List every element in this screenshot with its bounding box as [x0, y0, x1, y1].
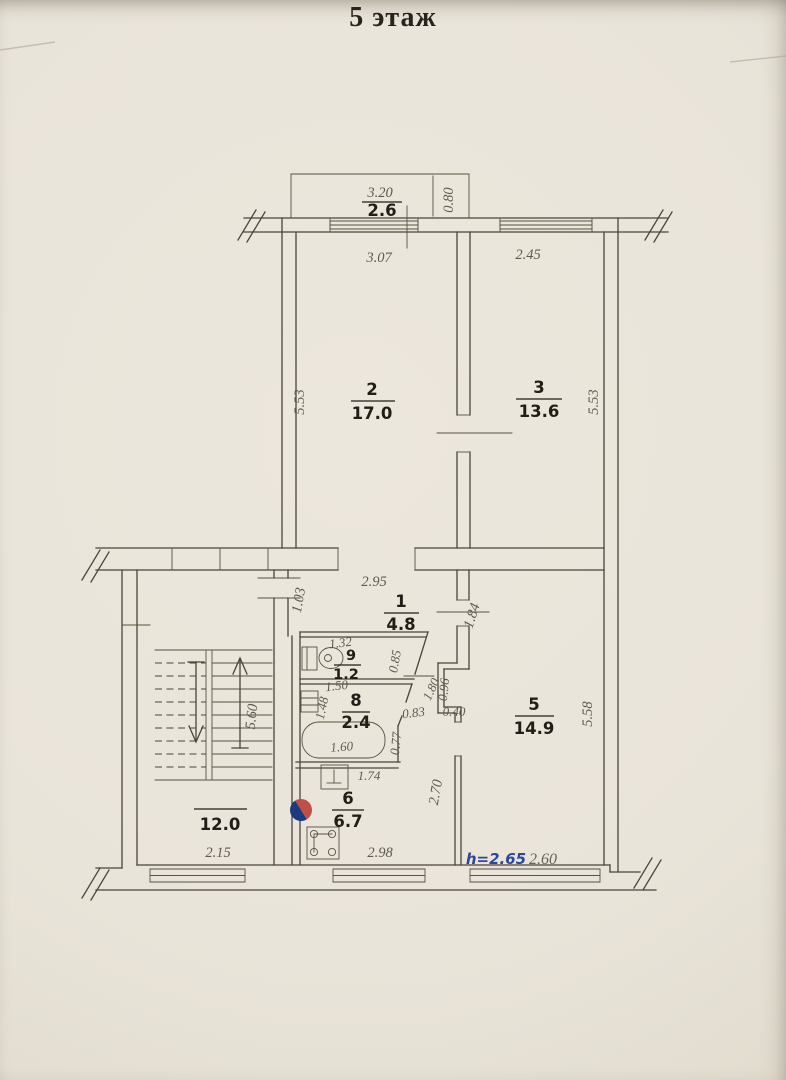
wall-break-icon	[82, 550, 109, 582]
dim-corridor-096: 0.96	[435, 677, 452, 702]
dim-room2-width: 3.07	[365, 250, 392, 266]
dim-balcony-depth: 0.80	[441, 187, 457, 213]
floor-plan-drawing: 3.20 0.80 2.6 3.07 5.53 2 17.0 2.45 5.53…	[0, 0, 786, 1080]
room6-number: 6	[342, 789, 353, 808]
dim-room5-height: 5.58	[580, 701, 596, 727]
dim-room9-bottom: 1.50	[324, 677, 349, 694]
dim-corridor-077: 0.77	[387, 731, 404, 756]
dim-stairwell-depth: 5.60	[243, 702, 262, 730]
window-kitchen	[333, 869, 425, 882]
room1-number: 1	[395, 592, 406, 611]
exterior-walls	[82, 210, 672, 900]
pencil-note-260: 2.60	[529, 851, 557, 868]
wall-break-icon	[238, 210, 265, 242]
wall-break-icon	[82, 868, 109, 900]
window-stairwell	[150, 869, 245, 882]
dim-room6-width: 2.98	[367, 845, 393, 861]
dim-room2-height: 5.53	[292, 389, 308, 414]
dim-room8-front: 1.74	[358, 768, 381, 783]
stairwell-area: 12.0	[200, 815, 241, 834]
dim-room1-width: 2.95	[361, 574, 386, 590]
room9-number: 9	[346, 648, 356, 664]
room8-area: 2.4	[341, 713, 370, 732]
dim-room1-left: 1.03	[289, 586, 309, 614]
room2-number: 2	[366, 380, 377, 399]
dim-room3-width: 2.45	[515, 247, 540, 263]
wall-break-icon	[645, 210, 672, 242]
window-room3	[500, 218, 592, 232]
ceiling-height-note: h=2.65	[466, 850, 526, 868]
dim-stairwell-width: 2.15	[205, 845, 230, 861]
dim-corridor-040: 0.40	[443, 704, 466, 719]
room6-area: 6.7	[333, 812, 362, 831]
room5-area: 14.9	[514, 719, 555, 738]
dim-room8-height: 1.48	[312, 695, 332, 721]
stove-icon	[307, 827, 339, 859]
scanned-floor-plan-page: { "title": "5 этаж", "colors": {"paper":…	[0, 0, 786, 1080]
room5-number: 5	[528, 695, 539, 714]
room3-area: 13.6	[519, 402, 560, 421]
window-room2	[330, 218, 418, 232]
stairs-up-arrow-icon	[232, 658, 248, 748]
dim-room9-height: 0.85	[385, 648, 404, 674]
dim-balcony-width: 3.20	[366, 185, 393, 201]
dim-bathtub-length: 1.60	[330, 738, 354, 755]
dim-room6-depth: 2.70	[426, 778, 446, 807]
room2-area: 17.0	[352, 404, 393, 423]
dim-room3-height: 5.53	[586, 389, 602, 414]
window-room5	[470, 869, 600, 882]
area-balcony: 2.6	[367, 201, 396, 220]
scan-edge-artifacts	[0, 42, 786, 62]
dim-room1-right: 1.84	[461, 601, 484, 630]
dim-corridor-083: 0.83	[401, 704, 426, 722]
wall-break-icon	[634, 858, 661, 890]
room8-number: 8	[350, 691, 361, 710]
pen-marker-dot	[286, 795, 316, 825]
dimension-labels: 3.20 0.80 2.6 3.07 5.53 2 17.0 2.45 5.53…	[194, 185, 602, 868]
room1-area: 4.8	[386, 615, 415, 634]
room3-number: 3	[533, 378, 544, 397]
